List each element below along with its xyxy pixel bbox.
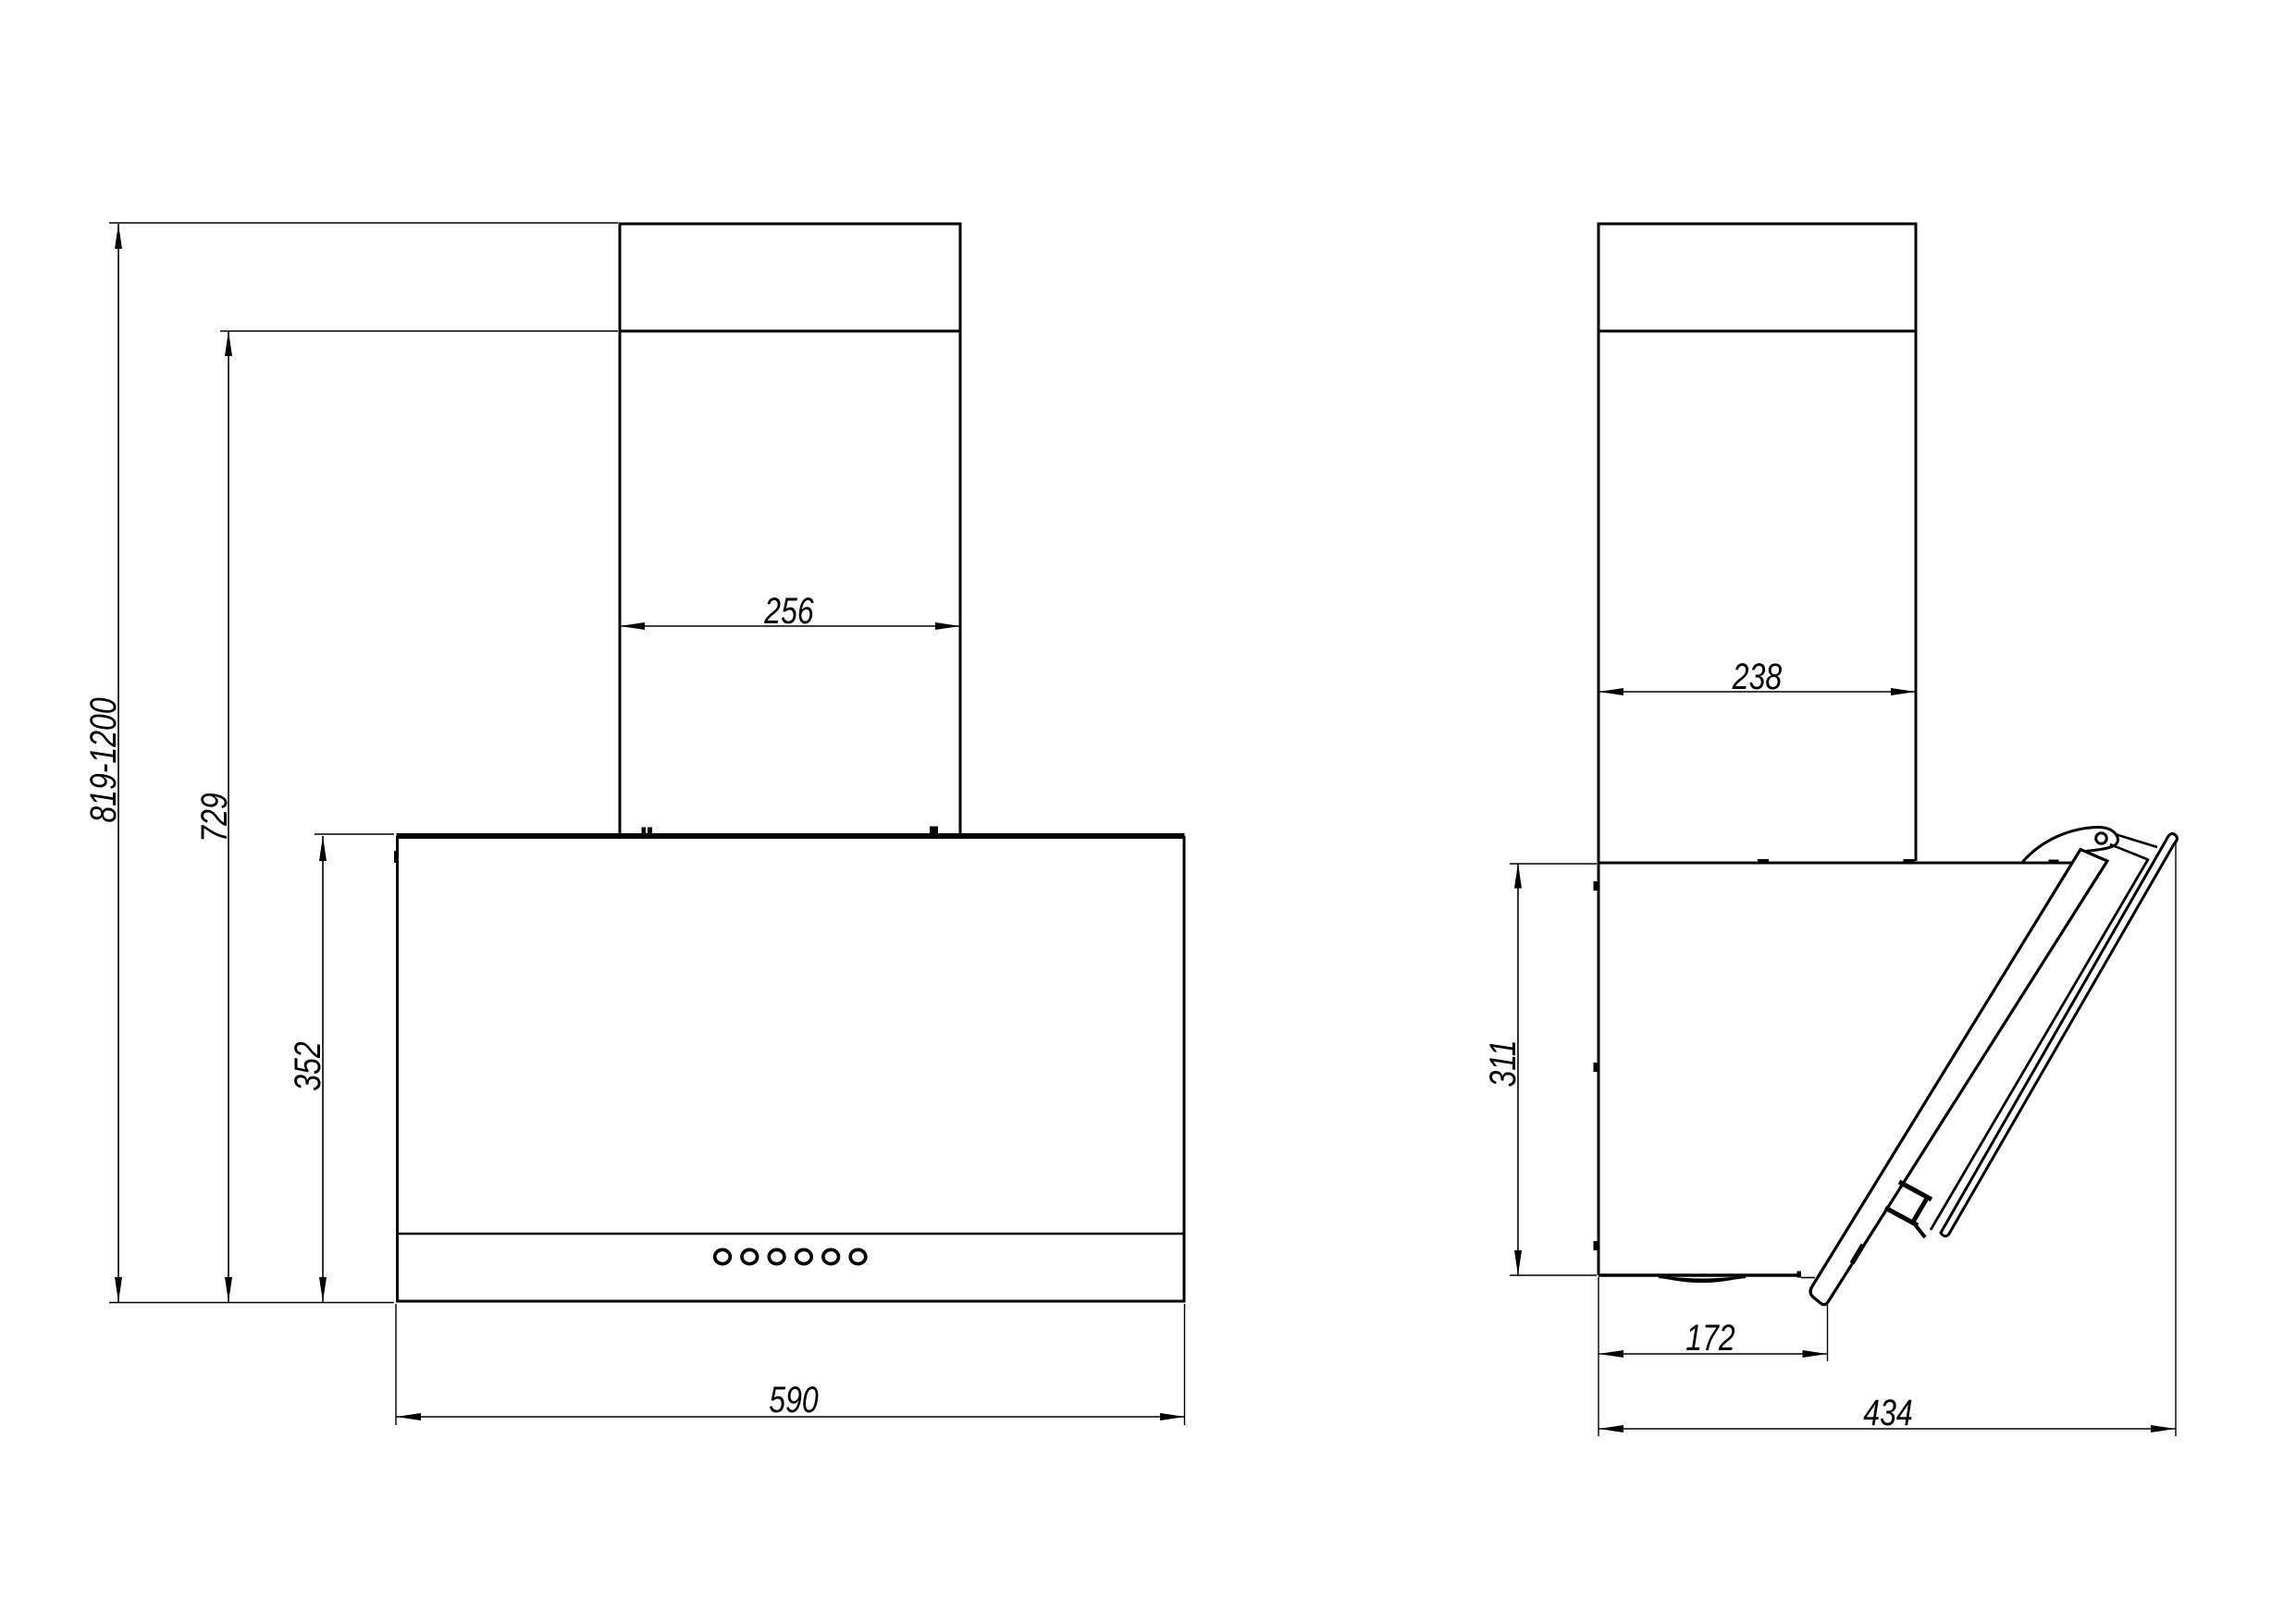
svg-text:729: 729	[193, 793, 235, 842]
svg-text:352: 352	[287, 1041, 328, 1090]
svg-text:238: 238	[1732, 656, 1782, 697]
svg-text:172: 172	[1685, 1317, 1734, 1359]
svg-text:590: 590	[769, 1379, 818, 1420]
svg-text:256: 256	[763, 590, 814, 632]
svg-text:819-1200: 819-1200	[82, 697, 124, 822]
svg-text:434: 434	[1863, 1392, 1912, 1433]
svg-text:311: 311	[1482, 1039, 1524, 1087]
